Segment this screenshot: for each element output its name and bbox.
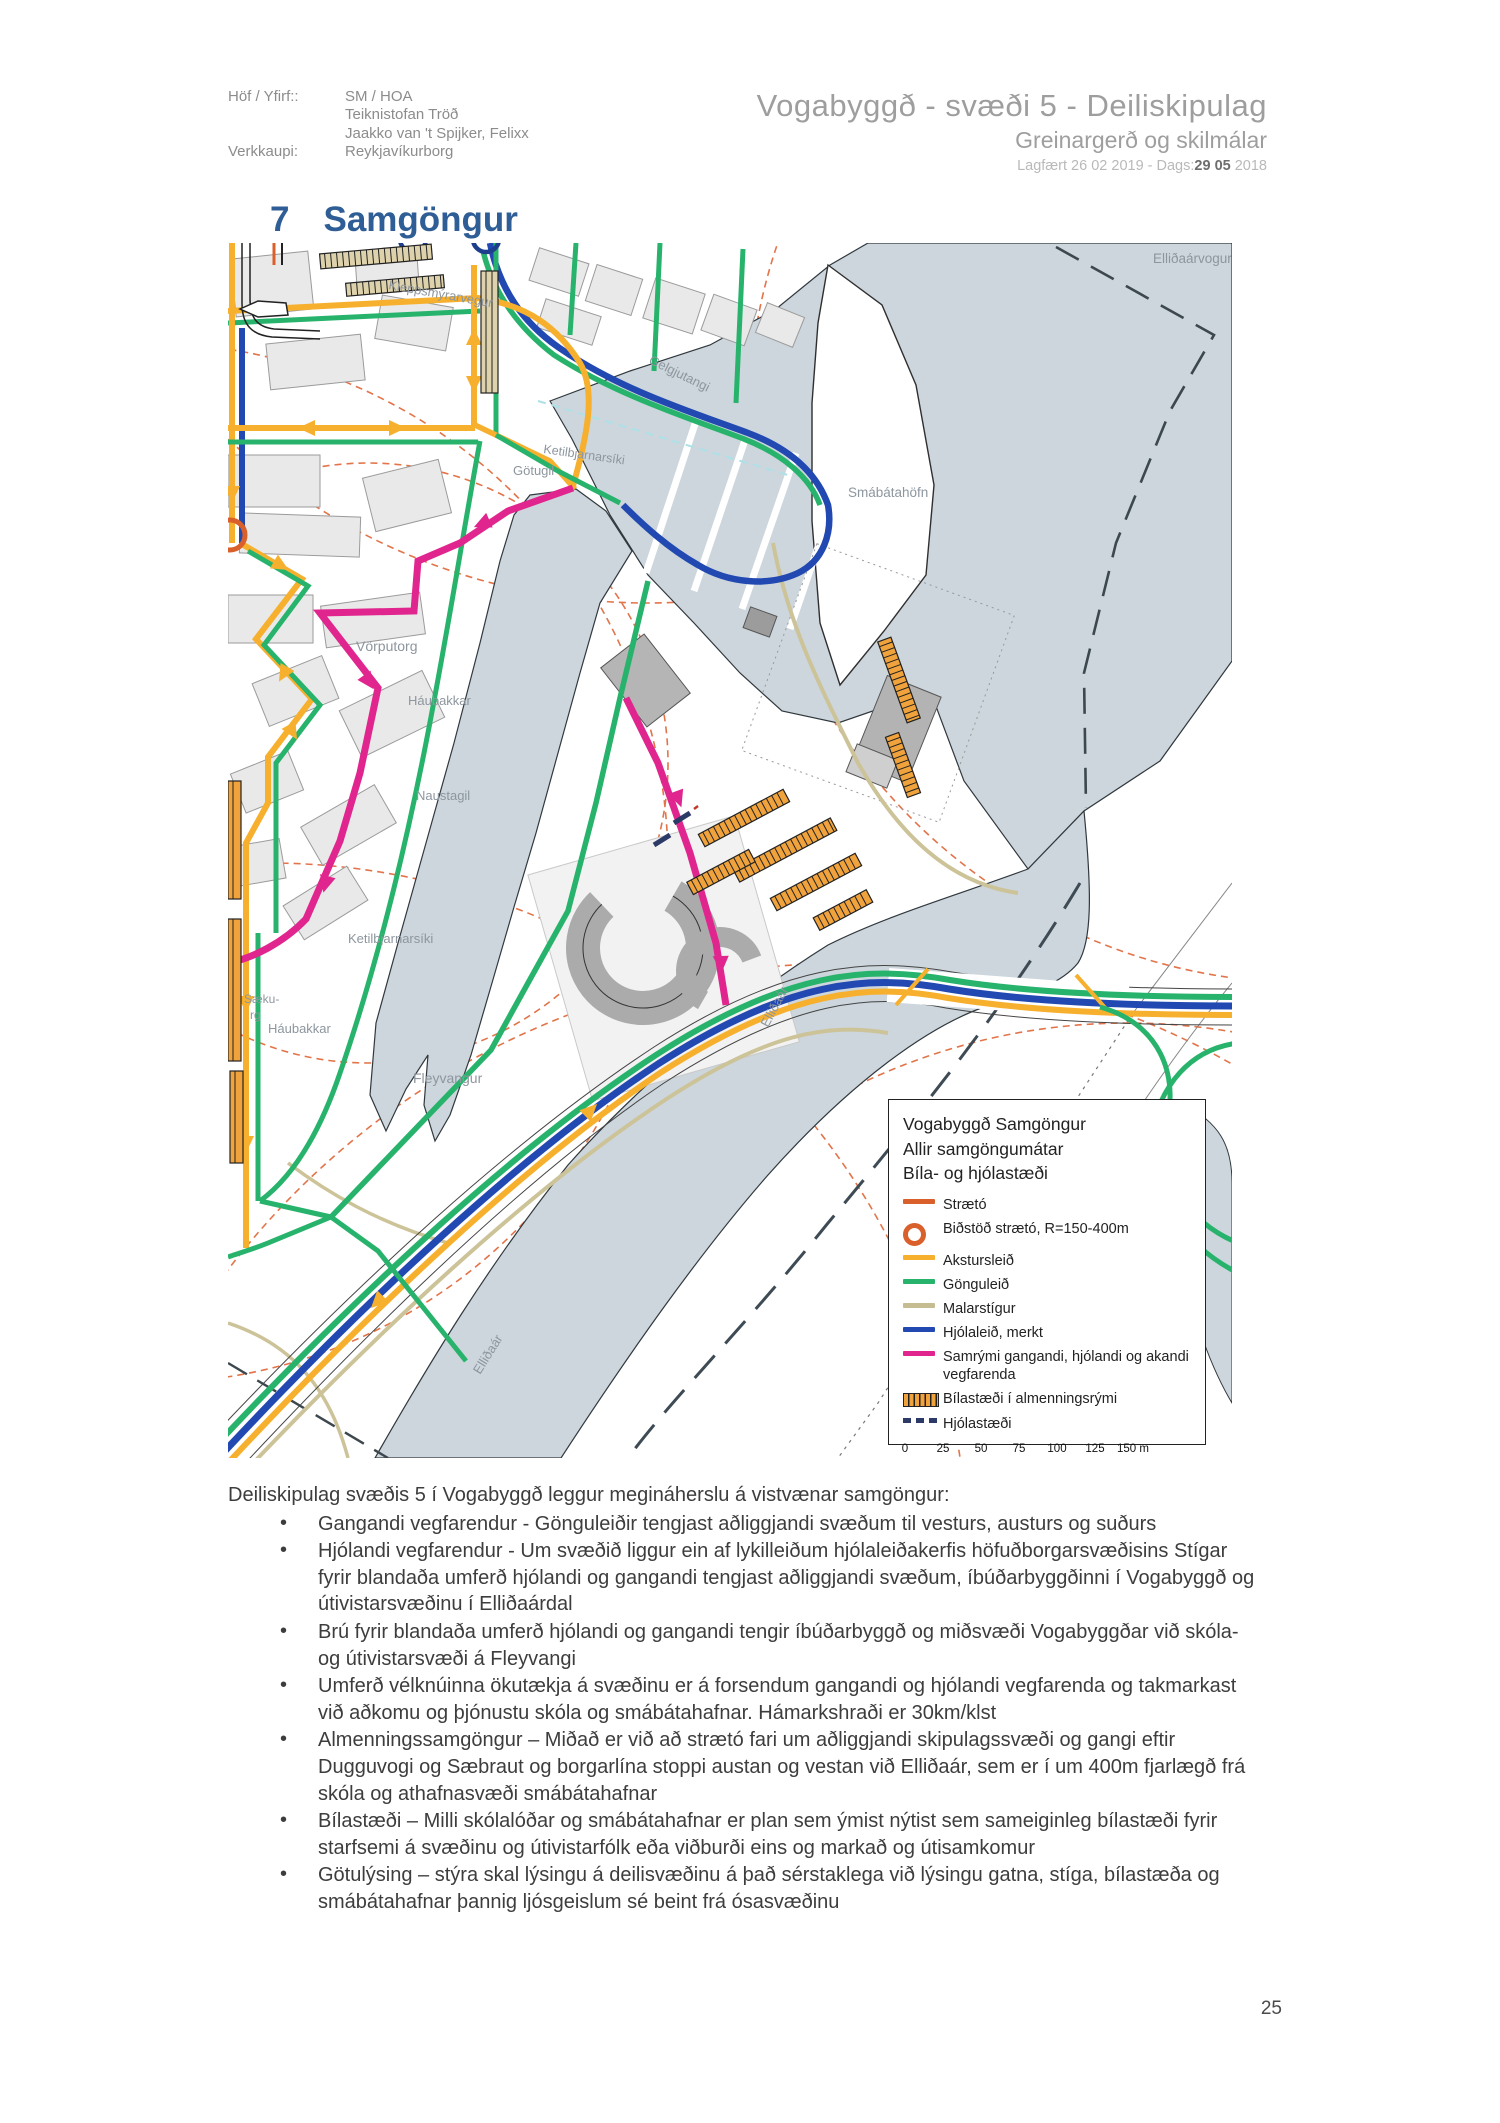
bullet-item: •Hjólandi vegfarendur - Um svæðið liggur… [228, 1538, 1258, 1618]
scale-tick-label: 150 m [1117, 1443, 1149, 1455]
scale-tick-label: 75 [1013, 1443, 1026, 1455]
credits-label-client: Verkkaupi: [228, 143, 345, 161]
bullet-text: Bílastæði – Milli skólalóðar og smábátah… [318, 1810, 1217, 1859]
legend-item-label: Hjólastæði [943, 1415, 1012, 1433]
map-label: Ketilbjarnarsíki [348, 931, 433, 946]
scale-tick-label: 0 [902, 1443, 908, 1455]
map-label: Götugil [513, 463, 554, 478]
legend-item: Hjólastæði [903, 1415, 1191, 1433]
legend-item: Malarstígur [903, 1300, 1191, 1318]
bullet-dot: • [280, 1726, 287, 1753]
legend-item: Hjólaleið, merkt [903, 1324, 1191, 1342]
legend-title-line: Allir samgöngumátar [903, 1137, 1191, 1162]
credits-author-line: Jaakko van 't Spijker, Felixx [345, 125, 529, 143]
revision-line: Lagfært 26 02 2019 - Dags:29 05 2018 [757, 158, 1267, 174]
bullet-text: Umferð vélknúinna ökutækja á svæðinu er … [318, 1675, 1236, 1724]
document-title: Vogabyggð - svæði 5 - Deiliskipulag [757, 88, 1267, 124]
legend-item-label: Malarstígur [943, 1300, 1016, 1318]
header-credits: Höf / Yfirf:: SM / HOA Teiknistofan Tröð… [228, 88, 529, 161]
bullet-text: Brú fyrir blandaða umferð hjólandi og ga… [318, 1621, 1239, 1670]
legend-swatch-line-icon [903, 1255, 935, 1260]
map-label: rg [250, 1008, 261, 1022]
legend-title-line: Bíla- og hjólastæði [903, 1161, 1191, 1186]
section-number: 7 [270, 200, 289, 239]
bullet-item: •Umferð vélknúinna ökutækja á svæðinu er… [228, 1673, 1258, 1726]
page-number: 25 [1261, 1998, 1282, 2020]
legend-title-line: Vogabyggð Samgöngur [903, 1112, 1191, 1137]
legend-item: Gönguleið [903, 1276, 1191, 1294]
map-label: Háubakkar [268, 1021, 332, 1036]
bullet-dot: • [280, 1537, 287, 1564]
map-label: Fleyvangur [413, 1070, 483, 1086]
legend-swatch-ring-icon [903, 1223, 926, 1246]
credits-author-line: SM / HOA [345, 88, 413, 106]
legend-swatch-line-icon [903, 1199, 935, 1204]
legend-item: Strætó [903, 1196, 1191, 1214]
scale-tick-label: 125 [1085, 1443, 1104, 1455]
bullet-item: •Götulýsing – stýra skal lýsingu á deili… [228, 1862, 1258, 1915]
bullet-item: •Bílastæði – Milli skólalóðar og smábáta… [228, 1808, 1258, 1861]
legend-item: Bílastæði í almenningsrými [903, 1390, 1191, 1408]
legend-item: Biðstöð strætó, R=150-400m [903, 1220, 1191, 1246]
revision-date: 29 05 [1194, 158, 1230, 174]
body-intro: Deiliskipulag svæðis 5 í Vogabyggð leggu… [228, 1482, 1258, 1509]
legend-item-label: Akstursleið [943, 1252, 1014, 1270]
map-label: Vörputorg [356, 638, 417, 654]
body-text: Deiliskipulag svæðis 5 í Vogabyggð leggu… [228, 1482, 1258, 1917]
legend-swatch-parking-icon [903, 1393, 939, 1407]
legend-swatch-line-icon [903, 1303, 935, 1308]
legend-swatch-line-icon [903, 1351, 935, 1356]
legend-swatch-dashes-icon [903, 1418, 937, 1423]
credits-label-author: Höf / Yfirf:: [228, 88, 345, 106]
bullet-item: •Almenningssamgöngur – Miðað er við að s… [228, 1727, 1258, 1807]
bullet-dot: • [280, 1618, 287, 1645]
bullet-item: •Brú fyrir blandaða umferð hjólandi og g… [228, 1619, 1258, 1672]
map-label: Naustagil [416, 788, 470, 803]
bullet-dot: • [280, 1807, 287, 1834]
bullet-dot: • [280, 1510, 287, 1537]
bullet-list: •Gangandi vegfarendur - Gönguleiðir teng… [228, 1511, 1258, 1916]
bullet-dot: • [280, 1861, 287, 1888]
legend-swatch-line-icon [903, 1327, 935, 1332]
header-titles: Vogabyggð - svæði 5 - Deiliskipulag Grei… [757, 88, 1267, 174]
legend-items: StrætóBiðstöð strætó, R=150-400mAkstursl… [903, 1196, 1191, 1433]
map-label: Elliðaárvogur [1153, 251, 1232, 266]
legend-item-label: Biðstöð strætó, R=150-400m [943, 1220, 1129, 1238]
document-page: Höf / Yfirf:: SM / HOA Teiknistofan Tröð… [0, 0, 1500, 2123]
legend-item-label: Bílastæði í almenningsrými [943, 1390, 1117, 1408]
bullet-text: Almenningssamgöngur – Miðað er við að st… [318, 1729, 1245, 1804]
credits-client: Reykjavíkurborg [345, 143, 453, 161]
bullet-text: Götulýsing – stýra skal lýsingu á deilis… [318, 1864, 1220, 1913]
map-label: Háubakkar [408, 693, 472, 708]
section-title: Samgöngur [323, 200, 517, 239]
scale-tick-label: 25 [937, 1443, 950, 1455]
legend-item-label: Samrými gangandi, hjólandi og akandi veg… [943, 1348, 1191, 1384]
legend-item: Akstursleið [903, 1252, 1191, 1270]
credits-author-line: Teiknistofan Tröð [345, 106, 458, 124]
bullet-dot: • [280, 1672, 287, 1699]
bullet-item: •Gangandi vegfarendur - Gönguleiðir teng… [228, 1511, 1258, 1538]
scale-bar-steps [903, 1457, 1153, 1458]
map-legend: Vogabyggð SamgöngurAllir samgöngumátarBí… [888, 1099, 1206, 1445]
legend-swatch-line-icon [903, 1279, 935, 1284]
scale-bar: 0255075100125150 m [903, 1443, 1191, 1458]
legend-item: Samrými gangandi, hjólandi og akandi veg… [903, 1348, 1191, 1384]
bullet-text: Hjólandi vegfarendur - Um svæðið liggur … [318, 1540, 1254, 1615]
legend-item-label: Strætó [943, 1196, 987, 1214]
scale-tick-label: 50 [975, 1443, 988, 1455]
map-label: Sæku- [244, 992, 279, 1006]
document-subtitle: Greinargerð og skilmálar [757, 127, 1267, 154]
section-heading: 7Samgöngur [270, 200, 518, 240]
transport-map: KleppsmýrarvegurGelgjutangiElliðaárvogur… [228, 243, 1232, 1458]
legend-title: Vogabyggð SamgöngurAllir samgöngumátarBí… [903, 1112, 1191, 1186]
legend-item-label: Gönguleið [943, 1276, 1009, 1294]
map-label: Smábátahöfn [848, 485, 928, 500]
scale-tick-label: 100 [1047, 1443, 1066, 1455]
bullet-text: Gangandi vegfarendur - Gönguleiðir tengj… [318, 1513, 1156, 1535]
legend-item-label: Hjólaleið, merkt [943, 1324, 1043, 1342]
